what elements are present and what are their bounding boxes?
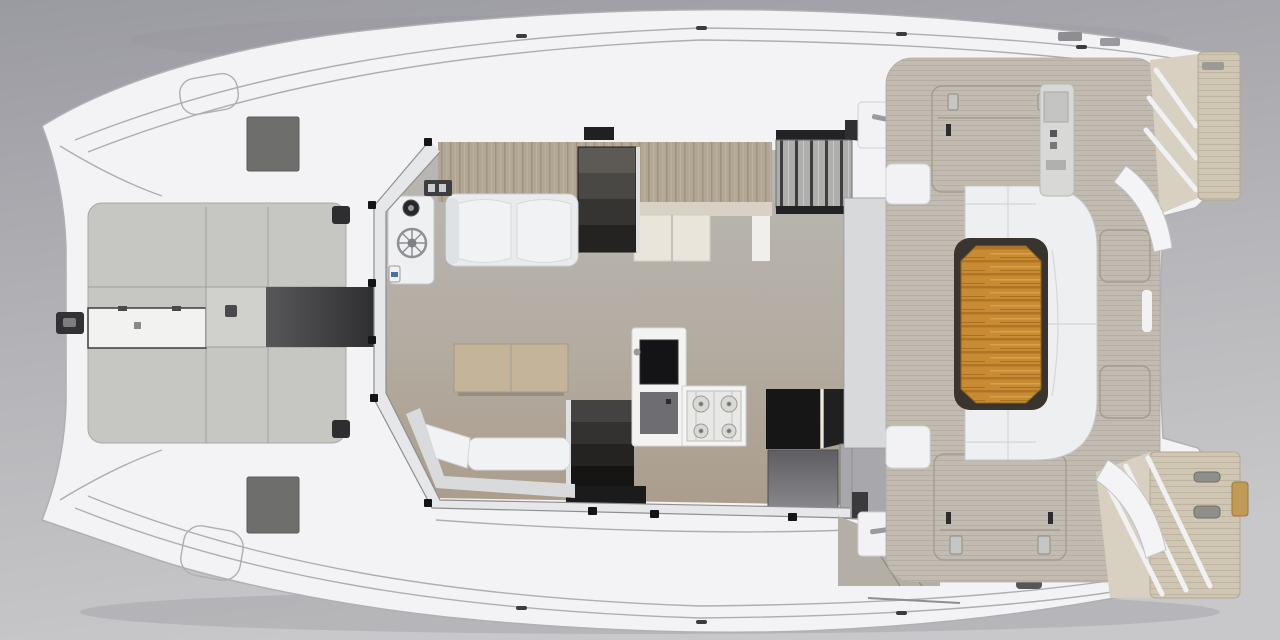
counter-black	[766, 389, 820, 449]
step-square-latch	[225, 305, 237, 317]
platform-fitting-top	[1202, 62, 1224, 70]
dinette-table	[454, 344, 568, 396]
door-step-bottom	[886, 426, 930, 468]
roof-hatch-edge	[584, 127, 614, 140]
salon-sofa	[446, 194, 578, 266]
foredeck-locker-lid	[88, 308, 206, 348]
island-knob	[666, 399, 671, 404]
mast-step-walkway	[266, 287, 376, 347]
stern-port	[1096, 452, 1248, 598]
step-edge-bottom	[776, 206, 852, 214]
foredeck-step-square	[206, 287, 268, 347]
helm-instruments	[1044, 92, 1068, 122]
foredeck	[56, 203, 376, 443]
bow-hatch-top	[247, 117, 299, 171]
teak-step-block	[1232, 482, 1248, 516]
locker-latch-left	[118, 306, 127, 311]
door-step-top	[886, 164, 930, 204]
salon-door-track	[844, 198, 888, 448]
roof-fitting-1	[1058, 32, 1082, 41]
cockpit-teak-table	[961, 246, 1041, 403]
windlass-drum	[63, 318, 76, 327]
island-lower-door	[640, 392, 678, 434]
galley-stove	[682, 386, 746, 446]
swim-platform-top	[1198, 52, 1240, 200]
deck-cleat-top	[332, 206, 350, 224]
wood-column-shelf	[752, 216, 770, 261]
gauge-display	[391, 272, 398, 277]
sofa-armrest	[446, 198, 459, 264]
deck-cleat-bottom	[332, 420, 350, 438]
locker-pull	[134, 322, 141, 329]
catamaran-floorplan-render	[0, 0, 1280, 640]
stairs-port	[566, 400, 634, 488]
faucet	[634, 349, 641, 356]
slatted-steps	[776, 140, 852, 208]
fridge-unit	[768, 450, 838, 514]
sofa-cushion-left	[457, 200, 511, 263]
transom-post	[1142, 290, 1152, 332]
roof-fitting-2	[1100, 38, 1120, 46]
locker-latch-right	[172, 306, 181, 311]
step-edge-top	[776, 130, 852, 140]
wheel-hub	[408, 239, 417, 248]
stairs-starboard	[578, 147, 640, 252]
bench-cushion-right	[468, 438, 570, 470]
bow-hatch-bottom	[247, 477, 299, 533]
render-canvas	[0, 0, 1280, 640]
island-sink	[640, 340, 678, 384]
sofa-cushion-right	[517, 200, 571, 263]
galley-island	[632, 328, 686, 446]
